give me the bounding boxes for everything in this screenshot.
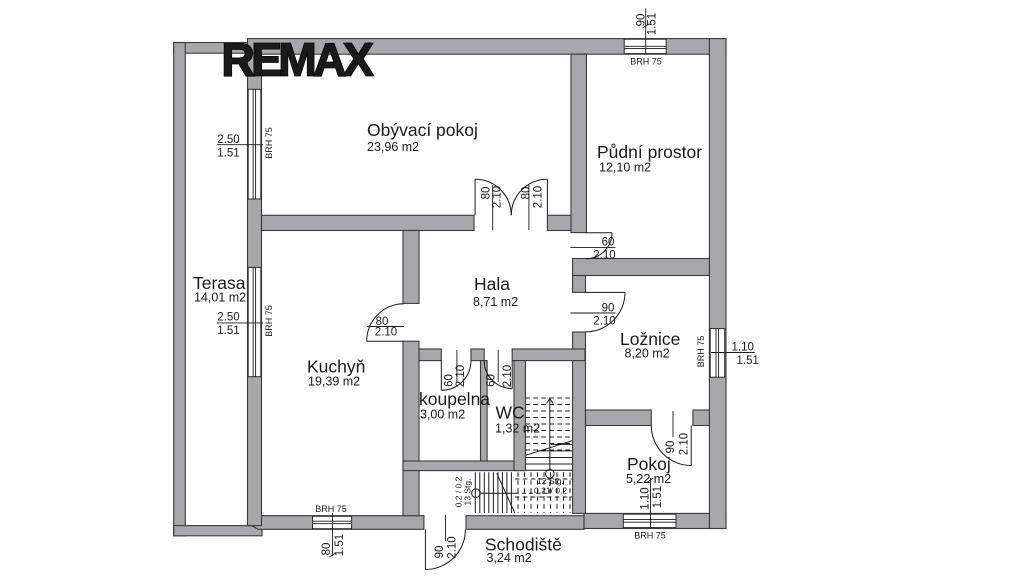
svg-text:12 Stg.: 12 Stg.: [537, 476, 564, 486]
svg-text:2.50: 2.50: [217, 134, 239, 146]
svg-text:1,32 m2: 1,32 m2: [495, 422, 540, 436]
svg-text:1.51: 1.51: [217, 148, 239, 160]
svg-text:BRH 75: BRH 75: [696, 336, 706, 368]
svg-text:2.10: 2.10: [533, 186, 545, 208]
svg-text:2.10: 2.10: [593, 250, 615, 262]
svg-text:1.51: 1.51: [334, 534, 346, 556]
svg-text:3,24 m2: 3,24 m2: [487, 551, 532, 565]
svg-text:8,71 m2: 8,71 m2: [473, 295, 518, 309]
svg-text:80: 80: [521, 187, 533, 200]
svg-text:2.10: 2.10: [375, 327, 397, 339]
svg-text:BRH 75: BRH 75: [634, 531, 666, 541]
svg-text:®: ®: [366, 41, 372, 50]
svg-text:5,22 m2: 5,22 m2: [626, 472, 671, 486]
svg-text:12,10 m2: 12,10 m2: [599, 161, 651, 175]
svg-text:90: 90: [434, 546, 446, 559]
svg-text:2.10: 2.10: [593, 315, 615, 327]
svg-text:14,01 m2: 14,01 m2: [194, 291, 246, 305]
svg-text:Kuchyň: Kuchyň: [307, 357, 365, 377]
svg-text:2.10: 2.10: [502, 365, 514, 387]
svg-text:1.10: 1.10: [640, 487, 652, 509]
svg-text:Pokoj: Pokoj: [627, 454, 671, 474]
svg-text:13 Stg.: 13 Stg.: [463, 479, 473, 506]
svg-text:BRH 75: BRH 75: [315, 504, 347, 514]
svg-text:0,21/ 0,2: 0,21/ 0,2: [534, 486, 567, 496]
svg-text:BRH 75: BRH 75: [630, 57, 662, 67]
svg-text:3,00 m2: 3,00 m2: [420, 408, 465, 422]
svg-text:WC: WC: [496, 403, 525, 423]
svg-text:60: 60: [486, 374, 498, 387]
svg-text:Obývací pokoj: Obývací pokoj: [367, 120, 478, 140]
svg-text:Hala: Hala: [474, 274, 510, 294]
svg-text:2.10: 2.10: [447, 536, 459, 558]
svg-text:Půdní prostor: Půdní prostor: [597, 142, 702, 162]
svg-text:19,39 m2: 19,39 m2: [308, 375, 360, 389]
svg-text:1.51: 1.51: [737, 355, 759, 367]
svg-text:2.10: 2.10: [679, 433, 691, 455]
svg-text:1.10: 1.10: [732, 342, 754, 354]
svg-text:REMAX: REMAX: [222, 34, 374, 86]
svg-text:koupelna: koupelna: [419, 389, 490, 409]
svg-text:1.51: 1.51: [652, 486, 664, 508]
svg-text:8,20 m2: 8,20 m2: [625, 347, 670, 361]
svg-text:60: 60: [444, 374, 456, 387]
svg-text:1.51: 1.51: [217, 325, 239, 337]
svg-text:2.10: 2.10: [455, 365, 467, 387]
svg-text:60: 60: [602, 237, 615, 249]
svg-text:80: 80: [321, 543, 333, 556]
svg-text:2.50: 2.50: [217, 312, 239, 324]
svg-text:BRH 75: BRH 75: [264, 127, 274, 159]
svg-text:23,96 m2: 23,96 m2: [367, 140, 419, 154]
svg-text:90: 90: [665, 441, 677, 454]
svg-text:BRH 75: BRH 75: [264, 305, 274, 337]
svg-text:1.51: 1.51: [647, 13, 659, 35]
svg-text:2.10: 2.10: [492, 186, 504, 208]
svg-text:90: 90: [602, 303, 615, 315]
